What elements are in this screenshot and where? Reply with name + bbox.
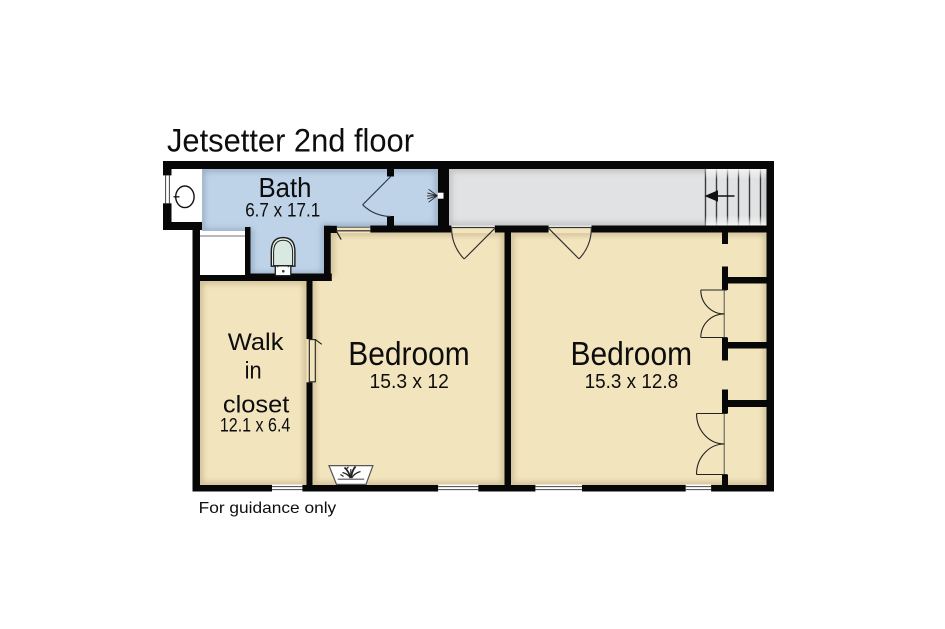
svg-text:6.7 x 17.1: 6.7 x 17.1 (245, 201, 320, 222)
svg-text:12.1 x 6.4: 12.1 x 6.4 (220, 415, 291, 436)
svg-text:Walk: Walk (228, 330, 284, 356)
svg-text:Jetsetter 2nd floor: Jetsetter 2nd floor (167, 123, 414, 159)
svg-text:15.3 x 12: 15.3 x 12 (370, 370, 449, 393)
svg-text:in: in (245, 359, 262, 385)
svg-text:Bedroom: Bedroom (571, 335, 693, 372)
svg-text:For guidance only: For guidance only (199, 500, 337, 517)
svg-text:15.3 x 12.8: 15.3 x 12.8 (585, 370, 679, 393)
svg-text:Bath: Bath (259, 172, 312, 203)
svg-text:Bedroom: Bedroom (348, 335, 470, 372)
